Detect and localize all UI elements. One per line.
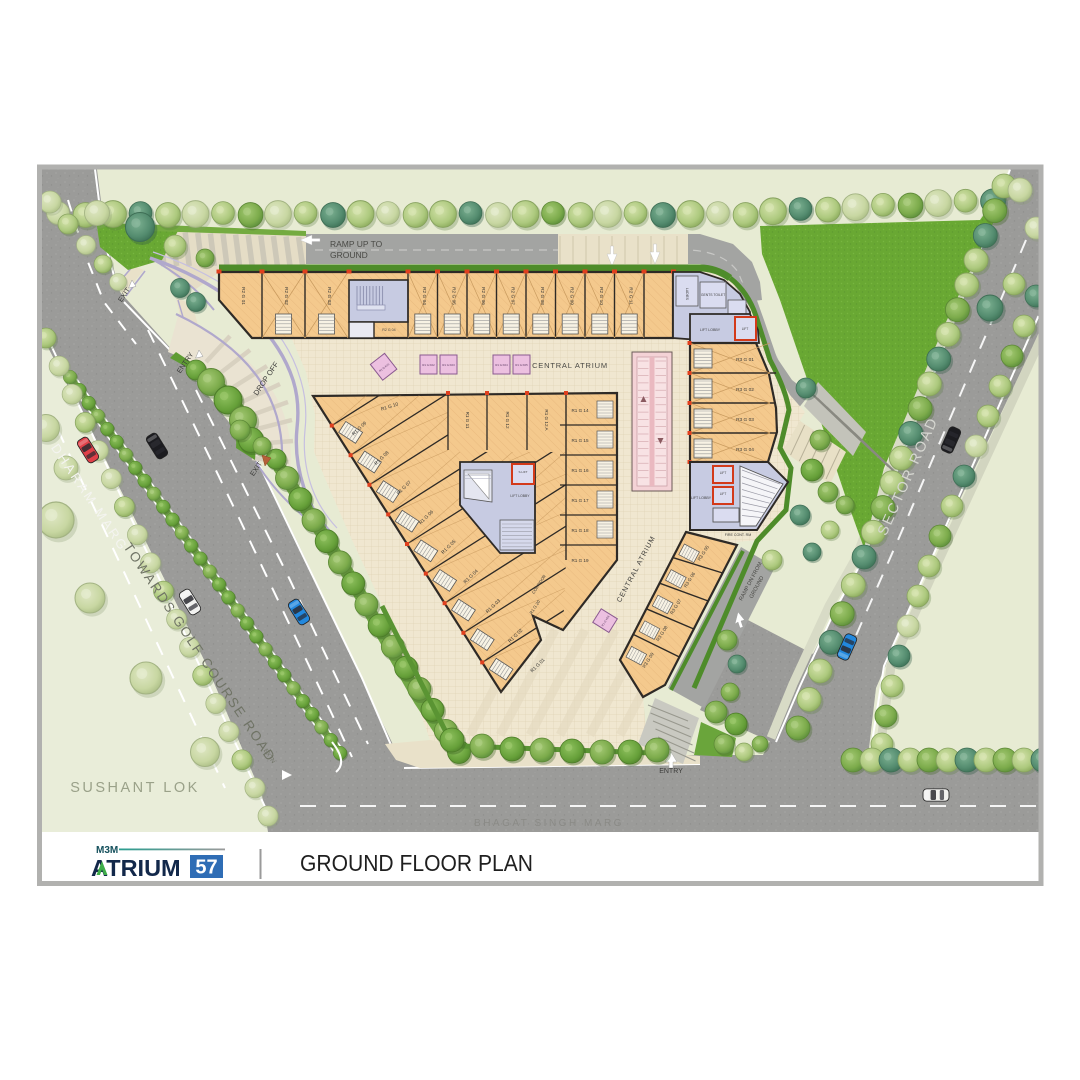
svg-text:R2 G 08: R2 G 08 xyxy=(539,287,545,305)
svg-text:R2 G 04: R2 G 04 xyxy=(382,328,395,332)
svg-text:R1 G K05: R1 G K05 xyxy=(515,363,528,367)
svg-text:R1 G 19: R1 G 19 xyxy=(571,558,589,563)
svg-text:LIFT: LIFT xyxy=(720,492,727,496)
svg-text:R2 G 01: R2 G 01 xyxy=(240,287,246,305)
svg-text:R1 G K03: R1 G K03 xyxy=(442,363,455,367)
svg-text:R2 G 06: R2 G 06 xyxy=(480,287,486,305)
svg-text:R1 G 14: R1 G 14 xyxy=(571,408,589,413)
svg-text:R1 G 17: R1 G 17 xyxy=(571,498,589,503)
svg-text:R1 G 15: R1 G 15 xyxy=(571,438,589,443)
svg-text:SUSHANT LOK: SUSHANT LOK xyxy=(70,780,200,796)
svg-text:GENTS TOILET: GENTS TOILET xyxy=(701,293,725,297)
svg-text:R2 G 05: R2 G 05 xyxy=(451,287,457,305)
svg-text:R1 G K02: R1 G K02 xyxy=(422,363,435,367)
svg-text:R3 G 02: R3 G 02 xyxy=(736,387,754,393)
svg-text:FIRE CONT. RM: FIRE CONT. RM xyxy=(725,533,752,537)
svg-text:R2 G 02: R2 G 02 xyxy=(283,287,289,305)
svg-text:R1 G 12: R1 G 12 xyxy=(505,411,510,429)
svg-text:GROUND: GROUND xyxy=(330,250,368,260)
svg-text:S.LIFT: S.LIFT xyxy=(518,470,527,474)
svg-text:LIFT LOBBY: LIFT LOBBY xyxy=(510,494,530,498)
svg-text:R2 G 10: R2 G 10 xyxy=(598,287,604,305)
svg-text:R2 G 11: R2 G 11 xyxy=(628,287,634,305)
svg-text:ENTRY: ENTRY xyxy=(659,768,683,775)
svg-text:R1 G K04: R1 G K04 xyxy=(495,363,508,367)
svg-text:R3 G 01: R3 G 01 xyxy=(736,357,754,363)
svg-text:R1 G 12 A: R1 G 12 A xyxy=(544,409,549,431)
svg-text:LIFT LOBBY: LIFT LOBBY xyxy=(700,328,721,332)
svg-text:BHAGAT SINGH MARG: BHAGAT SINGH MARG xyxy=(474,818,624,829)
svg-text:R2 G 04: R2 G 04 xyxy=(421,287,427,305)
svg-text:R2 G 07: R2 G 07 xyxy=(510,287,516,305)
svg-text:GROUND FLOOR PLAN: GROUND FLOOR PLAN xyxy=(300,850,533,876)
svg-text:RAMP UP TO: RAMP UP TO xyxy=(330,239,383,249)
svg-text:R1 G 18: R1 G 18 xyxy=(571,528,589,533)
svg-text:CENTRAL ATRIUM: CENTRAL ATRIUM xyxy=(532,361,608,370)
svg-text:R2 G 03: R2 G 03 xyxy=(326,287,332,305)
svg-text:R1 G 16: R1 G 16 xyxy=(571,468,589,473)
svg-text:LIFT LOBBY: LIFT LOBBY xyxy=(691,496,712,500)
svg-text:R1 G 11: R1 G 11 xyxy=(465,412,470,429)
svg-text:R3 G 04: R3 G 04 xyxy=(736,447,754,453)
svg-text:LADIES: LADIES xyxy=(685,288,689,301)
svg-text:57: 57 xyxy=(195,857,217,879)
svg-text:R3 G 03: R3 G 03 xyxy=(736,417,754,423)
svg-text:LIFT: LIFT xyxy=(720,471,727,475)
svg-text:LIFT: LIFT xyxy=(742,327,749,331)
svg-text:R2 G 09: R2 G 09 xyxy=(569,287,575,305)
